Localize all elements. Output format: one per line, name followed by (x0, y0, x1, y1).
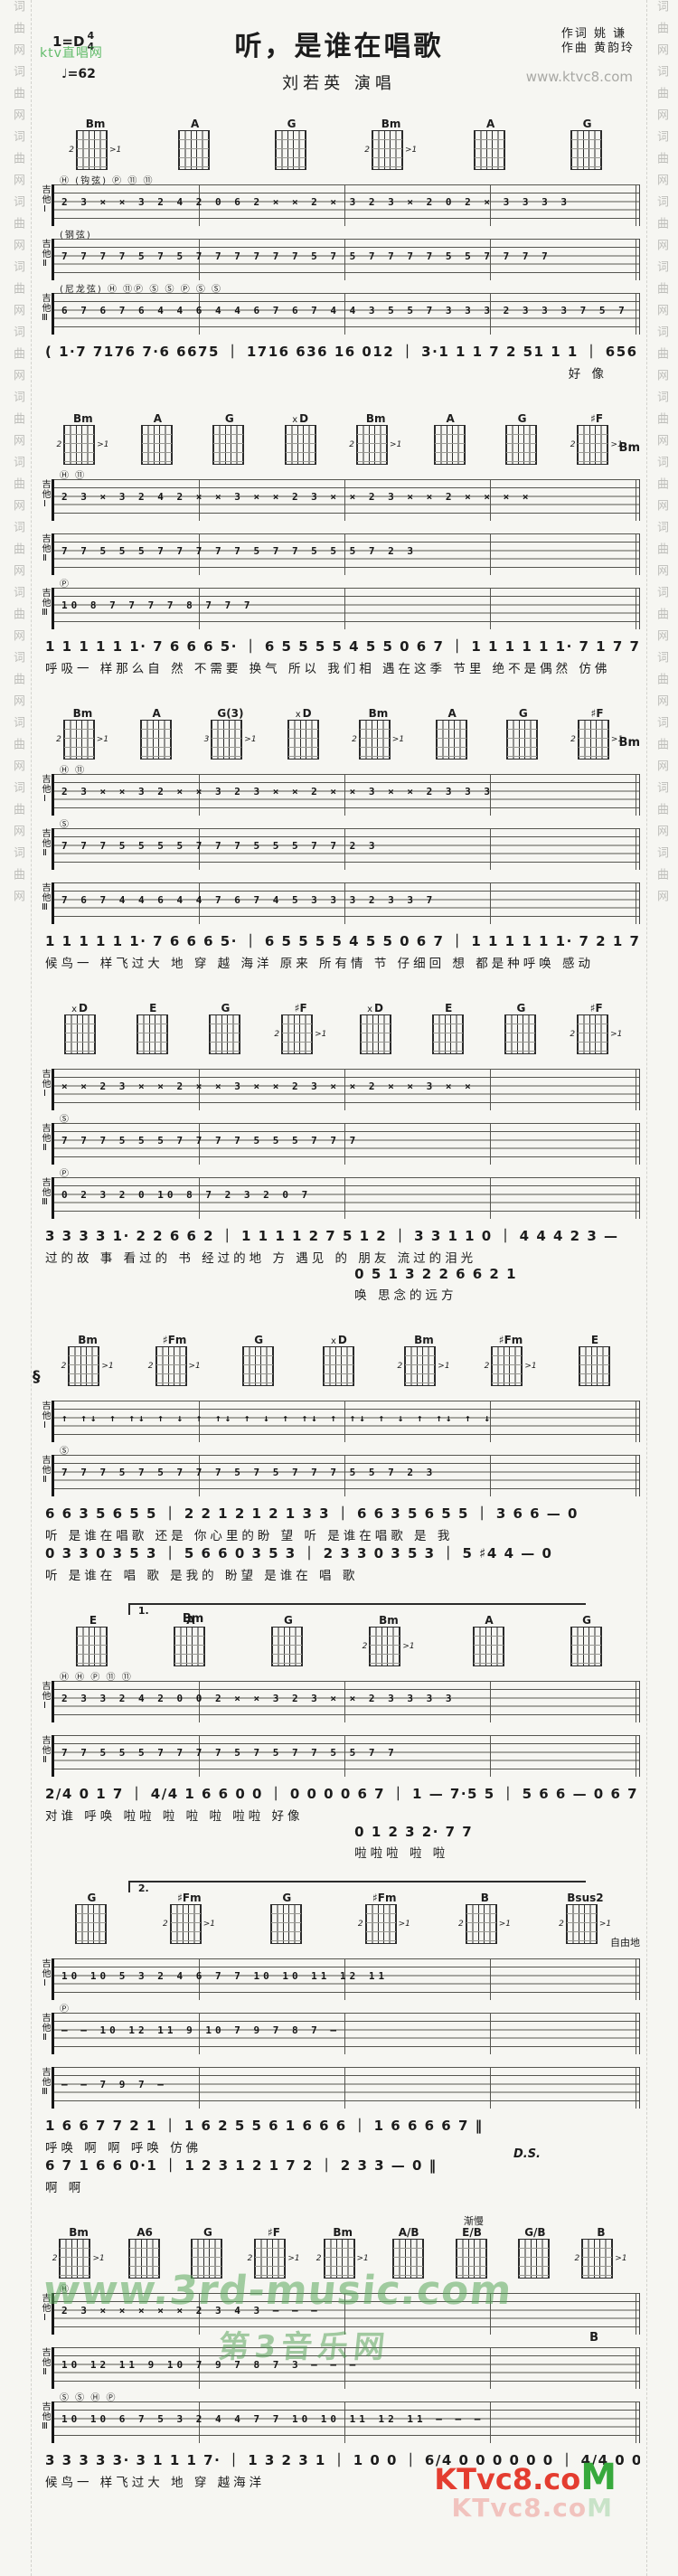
chord-grid (191, 2239, 222, 2279)
chord-fret-number: 2 (246, 2254, 252, 2263)
tempo-marking: ♩=62 (61, 67, 96, 81)
chord-diagram: Bsus2 2>1 (558, 1892, 611, 1944)
staff-lines: 7 6 7 4 4 6 4 4 7 6 7 4 5 3 3 3 2 3 3 7 (52, 882, 640, 924)
staff-lines: Ⓗ ⑪ 2 3 × 3 2 4 2 × × 3 × × 2 3 × × 2 3 … (52, 479, 640, 521)
chord-row: Bm 2>1 A G Bm 2>1 (38, 107, 640, 172)
technique-marks: Ⓢ (60, 816, 71, 830)
ktvc8-logo-echo: KTvc8.coM (452, 2493, 613, 2523)
chord-fret-number: 2 (457, 1920, 464, 1929)
tab-staff: 吉他Ⅱ 10 12 11 9 10 7 9 7 8 7 3 — — — (38, 2347, 640, 2389)
chord-row: Bm 2>1 A G xD (38, 401, 640, 467)
technique-marks: Ⓟ (60, 2001, 71, 2015)
chord-diagram: ♯Fm 2>1 (483, 1334, 536, 1386)
right-watermark-column: 词曲网词曲网词曲网词曲网词曲网词曲网词曲网词曲网词曲网词曲网词曲网词曲网词曲网词… (646, 0, 674, 2576)
song-title: 听，是谁在唱歌 (38, 0, 640, 63)
chord-row: § Bm 2>1 ♯Fm 2>1 G (38, 1323, 640, 1388)
chord-grid (271, 1627, 303, 1666)
chord-name: G (284, 1614, 293, 1627)
chord-diagram: E (424, 1002, 472, 1054)
chord-grid (577, 425, 608, 465)
melody-numbers-2: 0 3 3 0 3 5 3 ｜ 5 6 6 0 3 5 3 ｜ 2 3 3 0 … (45, 1543, 640, 1562)
chord-diagram: xD (279, 707, 327, 760)
chord-name: ♯F (591, 707, 604, 720)
chord-grid (68, 1346, 99, 1386)
chord-diagram: xD (56, 1002, 104, 1054)
chord-barre-mark: >1 (611, 735, 623, 744)
chord-diagram: G (263, 1614, 311, 1666)
chord-grid (369, 1627, 400, 1666)
tab-numbers: — — 7 9 7 — (61, 2079, 634, 2090)
chord-name: Bm (73, 412, 93, 425)
chord-barre-mark: >1 (524, 1362, 536, 1371)
chord-barre-mark: >1 (610, 1030, 622, 1039)
chord-fret-number: 2 (147, 1362, 154, 1371)
chord-grid (474, 130, 505, 170)
chord-barre-mark: >1 (315, 1030, 326, 1039)
chord-fret-number: 2 (570, 735, 576, 744)
chord-fret-number: 2 (558, 1920, 564, 1929)
site-watermark: www.ktvc8.com (526, 69, 633, 86)
sheet-music-page: 词曲网词曲网词曲网词曲网词曲网词曲网词曲网词曲网词曲网词曲网词曲网词曲网词曲网词… (0, 0, 678, 2576)
chord-fret-number: 2 (357, 1920, 363, 1929)
chord-grid (473, 1627, 504, 1666)
system-1: Bm 2>1 A G Bm 2>1 (38, 107, 640, 382)
staff-label: 吉他Ⅰ (38, 1069, 52, 1110)
chord-name: B (597, 2226, 605, 2239)
tab-staff: 吉他Ⅰ 10 10 5 3 2 4 6 7 7 10 10 11 12 11 (38, 1958, 640, 2000)
ktvc8-logo: KTvc8.coM (434, 2459, 617, 2496)
staff-label: 吉他Ⅰ (38, 184, 52, 226)
tab-numbers: 2 3 × × 3 2 4 2 0 6 2 × × 2 × 3 2 3 × 2 … (61, 196, 634, 208)
chord-barre-mark: >1 (390, 440, 401, 449)
chord-name: B (481, 1892, 489, 1904)
staff-label: 吉他Ⅱ (38, 533, 52, 575)
chord-fret-number: 3 (202, 735, 209, 744)
chord-name: Bm (369, 707, 389, 720)
segno-sign: § (33, 1368, 41, 1386)
chord-diagram: A (132, 707, 180, 760)
credits: 作词 姚 谦 作曲 黄韵玲 www.ktvc8.com (561, 27, 635, 57)
tab-numbers: 2 3 × × × × × 2 3 4 3 — — — (61, 2305, 634, 2317)
tab-numbers: 10 10 6 7 5 3 2 4 4 7 7 10 10 11 12 11 —… (61, 2413, 634, 2425)
chord-diagram: G(3) 3>1 (202, 707, 256, 760)
system-7: 2. 自由地 G ♯Fm 2>1 G (38, 1881, 640, 2195)
chord-grid (518, 2239, 550, 2279)
chord-fret-number: 2 (51, 2254, 57, 2263)
chord-barre-mark: >1 (244, 735, 256, 744)
chord-grid (76, 1627, 108, 1666)
logo-text: KTvc8 (434, 2462, 532, 2496)
chord-grid (456, 2239, 487, 2279)
chord-diagram: Bm 2>1 (348, 412, 401, 465)
chord-grid (178, 130, 210, 170)
logo-dot: .co (532, 2462, 580, 2496)
chord-diagram: G (497, 412, 545, 465)
tab-numbers: 10 12 11 9 10 7 9 7 8 7 3 — — — (61, 2359, 634, 2371)
chord-barre-mark: >1 (357, 2254, 369, 2263)
tab-staff: 吉他Ⅱ Ⓢ 7 7 7 5 5 5 5 7 7 7 5 5 5 7 7 2 3 (38, 828, 640, 870)
chord-grid (174, 1627, 205, 1666)
technique-marks: Ⓢ (60, 1111, 71, 1125)
chord-grid (506, 720, 538, 760)
rallentando-mark: 渐慢 (464, 2213, 484, 2228)
chord-grid (577, 1014, 608, 1054)
chord-name: ♯Fm (177, 1892, 202, 1904)
chord-diagram: ♯Fm 2>1 (147, 1334, 201, 1386)
lyrics: 过的故 事 看过的 书 经过的地 方 遇见 的 朋友 流过的泪光 (45, 1248, 640, 1266)
staff-label: 吉他Ⅲ (38, 293, 52, 335)
chord-diagram: A (428, 707, 476, 760)
chord-name: Bm (414, 1334, 434, 1346)
tab-staff: 吉他Ⅲ (尼龙弦) Ⓗ ⑪Ⓟ Ⓢ Ⓢ Ⓟ Ⓢ Ⓢ 6 7 6 7 6 4 4 6… (38, 293, 640, 335)
chord-diagram: ♯F 2>1 (569, 412, 622, 465)
chord-grid (505, 425, 537, 465)
chord-diagram: Bm 2>1 (68, 118, 121, 170)
score-content: 1=D 4 4 ktv直唱网 ♩=62 听，是谁在唱歌 作词 姚 谦 作曲 黄韵… (38, 0, 640, 2510)
chord-grid (59, 2239, 90, 2279)
chord-diagram: ♯F 2>1 (273, 1002, 326, 1054)
chord-fret-number: 2 (162, 1920, 168, 1929)
melody-numbers: 3 3 3 3 1· 2 2 6 6 2 ｜ 1 1 1 1 2 7 5 1 2… (45, 1226, 640, 1245)
volta-bracket: 2. (128, 1881, 586, 1892)
technique-marks: (尼龙弦) Ⓗ ⑪Ⓟ Ⓢ Ⓢ Ⓟ Ⓢ Ⓢ (60, 281, 222, 295)
chord-fret-number: 2 (569, 1030, 575, 1039)
vocal-line: 2/4 0 1 7 ｜ 4/4 1 6 6 0 0 ｜ 0 0 0 0 6 7 … (45, 1784, 640, 1861)
system-3: Bm Bm 2>1 A G(3) 3>1 (38, 696, 640, 971)
tab-staff: 吉他Ⅰ ↑ ↑↓ ↑ ↑↓ ↑ ↓ ↑ ↑↓ ↑ ↓ ↑ ↑↓ ↑ ↑↓ ↑ ↓… (38, 1401, 640, 1442)
vocal-line: 1 6 6 7 7 2 1 ｜ 1 6 2 5 5 6 1 6 6 6 ｜ 1 … (45, 2116, 640, 2195)
chord-diagram: A (465, 1614, 513, 1666)
chord-fret-number: 2 (55, 440, 61, 449)
chord-name: Bsus2 (567, 1892, 603, 1904)
staff-lines: 7 7 5 5 5 7 7 7 7 5 7 5 7 7 5 5 7 7 (52, 1735, 640, 1777)
melody-numbers-2: 0 1 2 3 2· 7 7 (354, 1824, 640, 1840)
staff-lines: (尼龙弦) Ⓗ ⑪Ⓟ Ⓢ Ⓢ Ⓟ Ⓢ Ⓢ 6 7 6 7 6 4 4 6 4 4… (52, 293, 640, 335)
chord-mute-mark: x (292, 415, 297, 425)
chord-grid (242, 1346, 274, 1386)
chord-diagram: G (562, 1614, 610, 1666)
chord-grid (466, 1904, 497, 1944)
chord-barre-mark: >1 (599, 1920, 611, 1929)
tab-staff: 吉他Ⅱ Ⓟ — — 10 12 11 9 10 7 9 7 8 7 — (38, 2013, 640, 2054)
staff-label: 吉他Ⅱ (38, 1455, 52, 1496)
staff-label: 吉他Ⅱ (38, 2013, 52, 2054)
chord-name: ♯F (590, 1002, 603, 1014)
staff-lines: Ⓟ 0 2 3 2 0 10 8 7 2 3 2 0 7 (52, 1177, 640, 1219)
chord-fret-number: 2 (60, 1362, 66, 1371)
chord-grid (570, 130, 602, 170)
tab-numbers: — — 10 12 11 9 10 7 9 7 8 7 — (61, 2024, 634, 2036)
chord-grid (581, 2239, 613, 2279)
chord-grid (212, 425, 244, 465)
lyrics: 听 是谁在唱歌 还是 你心里的盼 望 听 是谁在唱歌 是 我 (45, 1525, 640, 1543)
technique-marks: Ⓗ ⑪ (60, 467, 86, 481)
staff-label: 吉他Ⅱ (38, 1123, 52, 1165)
chord-diagram: xD (352, 1002, 400, 1054)
vocal-line: ( 1·7 7176 7·6 6675 ｜ 1716 636 16 012 ｜ … (45, 342, 640, 382)
tempo-annotation: 自由地 (610, 1935, 640, 1949)
chord-grid (285, 425, 316, 465)
chord-diagram: ♯F 2>1 (569, 1002, 622, 1054)
chord-grid (63, 720, 95, 760)
chord-grid (270, 1904, 302, 1944)
chord-grid (64, 1014, 96, 1054)
chord-name: E (445, 1002, 452, 1014)
chord-diagram: Bm 2>1 (315, 2226, 369, 2279)
chord-barre-mark: >1 (203, 1920, 215, 1929)
tab-numbers: 7 7 5 5 5 7 7 7 7 7 5 7 7 5 5 5 7 2 3 (61, 545, 634, 557)
tab-staff: 吉他Ⅲ 7 6 7 4 4 6 4 4 7 6 7 4 5 3 3 3 2 3 … (38, 882, 640, 924)
chord-barre-mark: >1 (109, 146, 121, 155)
chord-name: G(3) (217, 707, 243, 720)
tab-numbers: 2 3 3 2 4 2 0 0 2 × × 3 2 3 × × 2 3 3 3 … (61, 1693, 634, 1704)
chord-diagram: A/B (384, 2226, 432, 2279)
chord-mute-mark: x (296, 710, 301, 720)
chord-barre-mark: >1 (92, 2254, 104, 2263)
chord-fret-number: 2 (68, 146, 74, 155)
chord-name: A (153, 707, 161, 720)
chord-name: D (299, 412, 308, 425)
melody-numbers-2: 0 5 1 3 2 2 6 6 2 1 (354, 1266, 640, 1282)
chord-name: A6 (137, 2226, 153, 2239)
chord-name: Bm (333, 2226, 353, 2239)
staff-lines: Ⓗ Ⓗ Ⓟ ⑪ ⑪ 2 3 3 2 4 2 0 0 2 × × 3 2 3 × … (52, 1681, 640, 1722)
chord-name: Bm (379, 1614, 399, 1627)
chord-grid (281, 1014, 313, 1054)
chord-grid (209, 1014, 240, 1054)
technique-marks: Ⓗ (60, 2281, 71, 2295)
chord-fret-number: 2 (361, 1642, 367, 1651)
chord-name: G (254, 1334, 263, 1346)
tab-numbers: 10 8 7 7 7 7 8 7 7 7 (61, 599, 634, 611)
chord-grid (75, 1904, 107, 1944)
chord-diagram: Bm 2>1 (361, 1614, 414, 1666)
chord-name: Bm (86, 118, 106, 130)
chord-diagram: xD (277, 412, 325, 465)
technique-marks: (钢弦) (60, 227, 92, 241)
ktv-watermark: ktv直唱网 (40, 43, 103, 61)
staff-label: 吉他Ⅲ (38, 882, 52, 924)
tab-numbers: 7 7 7 5 7 5 7 7 7 5 7 5 7 7 7 5 5 7 2 3 (61, 1467, 634, 1478)
chord-diagram: B 2>1 (457, 1892, 511, 1944)
tab-staff: 吉他Ⅱ Ⓢ 7 7 7 5 5 5 7 7 7 7 5 5 5 7 7 7 (38, 1123, 640, 1165)
system-5: § Bm 2>1 ♯Fm 2>1 G (38, 1323, 640, 1583)
chord-name: G (518, 412, 527, 425)
vocal-line: 6 6 3 5 6 5 5 ｜ 2 2 1 2 1 2 1 3 3 ｜ 6 6 … (45, 1504, 640, 1583)
chord-fret-number: 2 (569, 440, 575, 449)
staff-lines: (钢弦) 7 7 7 7 5 7 5 7 7 7 7 7 7 5 7 5 7 7… (52, 239, 640, 280)
staff-label: 吉他Ⅰ (38, 1958, 52, 2000)
melody-numbers: 1 6 6 7 7 2 1 ｜ 1 6 2 5 5 6 1 6 6 6 ｜ 1 … (45, 2116, 640, 2135)
chord-grid (434, 425, 466, 465)
chord-name: Bm (78, 1334, 98, 1346)
chord-diagram: G (201, 1002, 249, 1054)
staff-lines: Ⓟ — — 10 12 11 9 10 7 9 7 8 7 — (52, 2013, 640, 2054)
chord-name: A (186, 1614, 194, 1627)
vocal-line: 1 1 1 1 1 1· 7 6 6 6 5· ｜ 6 5 5 5 5 4 5 … (45, 637, 640, 676)
chord-name: G (282, 1892, 291, 1904)
staff-label: 吉他Ⅱ (38, 2347, 52, 2389)
chord-barre-mark: >1 (615, 2254, 626, 2263)
chord-grid (141, 425, 173, 465)
chord-grid (570, 1627, 602, 1666)
chord-grid (128, 2239, 160, 2279)
chord-grid (211, 720, 242, 760)
chord-name: A (448, 707, 457, 720)
chord-diagram: G (183, 2226, 231, 2279)
chord-diagram: A (466, 118, 513, 170)
chord-name: ♯Fm (163, 1334, 187, 1346)
tab-numbers: 7 7 5 5 5 7 7 7 7 5 7 5 7 7 5 5 7 7 (61, 1747, 634, 1759)
chord-diagram: ♯Fm 2>1 (357, 1892, 410, 1944)
technique-marks: Ⓟ (60, 1165, 71, 1179)
chord-name: E (149, 1002, 156, 1014)
chord-diagram: A (426, 412, 474, 465)
chord-name: Bm (69, 2226, 89, 2239)
technique-marks: Ⓢ Ⓢ Ⓗ Ⓟ (60, 2390, 118, 2403)
staff-lines: Ⓗ ⑪ 2 3 × × 3 2 × × 3 2 3 × × 2 × × 3 × … (52, 774, 640, 816)
chord-diagram: A (133, 412, 181, 465)
chord-diagram: E (128, 1002, 176, 1054)
chord-grid (578, 720, 609, 760)
chord-diagram: ♯Fm 2>1 (162, 1892, 215, 1944)
chord-diagram: G (562, 118, 610, 170)
staff-lines: 7 7 5 5 5 7 7 7 7 7 5 7 7 5 5 5 7 2 3 (52, 533, 640, 575)
chord-name: A (154, 412, 162, 425)
chord-barre-mark: >1 (405, 146, 417, 155)
chord-diagram: Bm 2>1 (51, 2226, 104, 2279)
chord-grid (359, 720, 391, 760)
chord-name: G (287, 118, 297, 130)
chord-fret-number: 2 (348, 440, 354, 449)
chord-name: D (338, 1334, 347, 1346)
chord-diagram: G (234, 1334, 282, 1386)
chord-grid (392, 2239, 424, 2279)
chord-name: G (516, 1002, 525, 1014)
chord-barre-mark: >1 (287, 2254, 299, 2263)
staff-label: 吉他Ⅱ (38, 239, 52, 280)
tab-numbers: ↑ ↑↓ ↑ ↑↓ ↑ ↓ ↑ ↑↓ ↑ ↓ ↑ ↑↓ ↑ ↑↓ ↑ ↓ ↑ ↑… (61, 1412, 634, 1424)
tab-numbers: × × 2 3 × × 2 × × 3 × × 2 3 × × 2 × × 3 … (61, 1080, 634, 1092)
chord-fret-number: 2 (483, 1362, 489, 1371)
time-top: 4 (87, 31, 94, 42)
left-watermark-column: 词曲网词曲网词曲网词曲网词曲网词曲网词曲网词曲网词曲网词曲网词曲网词曲网词曲网词… (4, 0, 32, 2576)
tab-staff: 吉他Ⅲ Ⓟ 0 2 3 2 0 10 8 7 2 3 2 0 7 (38, 1177, 640, 1219)
chord-grid (579, 1346, 610, 1386)
staff-lines: Ⓟ 10 8 7 7 7 7 8 7 7 7 (52, 588, 640, 629)
vocal-line: 3 3 3 3 1· 2 2 6 6 2 ｜ 1 1 1 1 2 7 5 1 2… (45, 1226, 640, 1303)
chord-row: Bm 2>1 A G(3) 3>1 xD (38, 696, 640, 761)
staff-lines: Ⓢ 7 7 7 5 5 5 7 7 7 7 5 5 5 7 7 7 (52, 1123, 640, 1165)
vocal-line: 3 3 3 3 3· 3 1 1 1 7· ｜ 1 3 2 3 1 ｜ 1 0 … (45, 2450, 640, 2490)
chord-name: A (447, 412, 455, 425)
chord-mute-mark: x (367, 1005, 372, 1014)
chord-barre-mark: >1 (399, 1920, 410, 1929)
chord-fret-number: 2 (573, 2254, 579, 2263)
chord-grid (63, 425, 95, 465)
volta-number: 2. (136, 1882, 152, 1894)
chord-name: D (79, 1002, 88, 1014)
lyrics: 候鸟一 样飞过大 地 穿 越 海洋 原来 所有情 节 仔细回 想 都是种呼唤 感… (45, 953, 640, 971)
chord-name: G (225, 412, 234, 425)
technique-marks: Ⓗ ⑪ (60, 762, 86, 776)
chord-fret-number: 2 (273, 1030, 279, 1039)
melody-numbers: ( 1·7 7176 7·6 6675 ｜ 1716 636 16 012 ｜ … (45, 342, 640, 361)
chord-grid (140, 720, 172, 760)
logo-echo-text: KTvc8.co (452, 2493, 588, 2523)
tab-staff: 吉他Ⅰ Ⓗ 2 3 × × × × × 2 3 4 3 — — — (38, 2293, 640, 2335)
chord-diagram: A6 (120, 2226, 168, 2279)
staff-label: 吉他Ⅱ (38, 1735, 52, 1777)
chord-name: G (582, 1614, 591, 1627)
lyrics-2: 啊 啊 (45, 2177, 640, 2195)
chord-diagram: Bm 2>1 (351, 707, 404, 760)
composer: 作曲 黄韵玲 (561, 42, 635, 56)
chord-grid (566, 1904, 598, 1944)
chord-fret-number: 2 (396, 1362, 402, 1371)
volta-bracket: 1. (128, 1603, 586, 1615)
chord-diagram: Bm 2>1 (55, 707, 108, 760)
chord-row: 1. E A G (38, 1603, 640, 1668)
chord-diagram: G (498, 707, 546, 760)
chord-name: G (203, 2226, 212, 2239)
chord-name: G (87, 1892, 96, 1904)
chord-diagram: A (165, 1614, 213, 1666)
lyrics: 好 像 (45, 363, 640, 382)
chord-name: D (374, 1002, 383, 1014)
staff-label: 吉他Ⅰ (38, 479, 52, 521)
staff-lines: Ⓢ Ⓢ Ⓗ Ⓟ 10 10 6 7 5 3 2 4 4 7 7 10 10 11… (52, 2401, 640, 2443)
staff-label: 吉他Ⅲ (38, 588, 52, 629)
chord-grid (137, 1014, 168, 1054)
chord-name: A (485, 1614, 493, 1627)
chord-barre-mark: >1 (610, 440, 622, 449)
technique-marks: Ⓗ (钩弦) Ⓟ ⑪ ⑪ (60, 173, 155, 186)
chord-row: 渐慢 Bm 2>1 A6 G (38, 2215, 640, 2280)
chord-fret-number: 2 (315, 2254, 322, 2263)
chord-grid (324, 2239, 355, 2279)
tab-staff: 吉他Ⅱ Ⓢ 7 7 7 5 7 5 7 7 7 5 7 5 7 7 7 5 5 … (38, 1455, 640, 1496)
chord-diagram: A (170, 118, 218, 170)
staff-label: 吉他Ⅲ (38, 1177, 52, 1219)
chord-fret-number: 2 (351, 735, 357, 744)
staff-label: 吉他Ⅲ (38, 2067, 52, 2109)
chord-grid (404, 1346, 436, 1386)
chord-name: E/B (462, 2226, 482, 2239)
chord-name: A (486, 118, 494, 130)
lyrics: 呼唤 啊 啊 呼唤 仿佛 (45, 2137, 640, 2156)
chord-diagram: G (267, 118, 315, 170)
chord-diagram: G/B (510, 2226, 558, 2279)
staff-lines: Ⓗ (钩弦) Ⓟ ⑪ ⑪ 2 3 × × 3 2 4 2 0 6 2 × × 2… (52, 184, 640, 226)
staff-lines: Ⓢ 7 7 7 5 7 5 7 7 7 5 7 5 7 7 7 5 5 7 2 … (52, 1455, 640, 1496)
staff-label: 吉他Ⅰ (38, 1401, 52, 1442)
tab-numbers: 7 7 7 7 5 7 5 7 7 7 7 7 7 5 7 5 7 7 7 7 … (61, 250, 634, 262)
system-8: 渐慢 Bm 2>1 A6 G (38, 2215, 640, 2490)
lyrics: 对谁 呼唤 啦啦 啦 啦 啦 啦啦 好像 (45, 1806, 640, 1824)
chord-grid (155, 1346, 187, 1386)
chord-name: G/B (524, 2226, 545, 2239)
chord-row: 2. 自由地 G ♯Fm 2>1 G (38, 1881, 640, 1946)
staff-lines: — — 7 9 7 — (52, 2067, 640, 2109)
lyrics-2: 听 是谁在 唱 歌 是我的 盼望 是谁在 唱 歌 (45, 1565, 640, 1583)
tab-staff: 吉他Ⅲ — — 7 9 7 — (38, 2067, 640, 2109)
chord-name: ♯Fm (499, 1334, 523, 1346)
technique-marks: Ⓗ Ⓗ Ⓟ ⑪ ⑪ (60, 1669, 133, 1683)
tab-numbers: 0 2 3 2 0 10 8 7 2 3 2 0 7 (61, 1189, 634, 1201)
melody-numbers: 1 1 1 1 1 1· 7 6 6 6 5· ｜ 6 5 5 5 5 4 5 … (45, 637, 640, 656)
chord-grid (254, 2239, 286, 2279)
